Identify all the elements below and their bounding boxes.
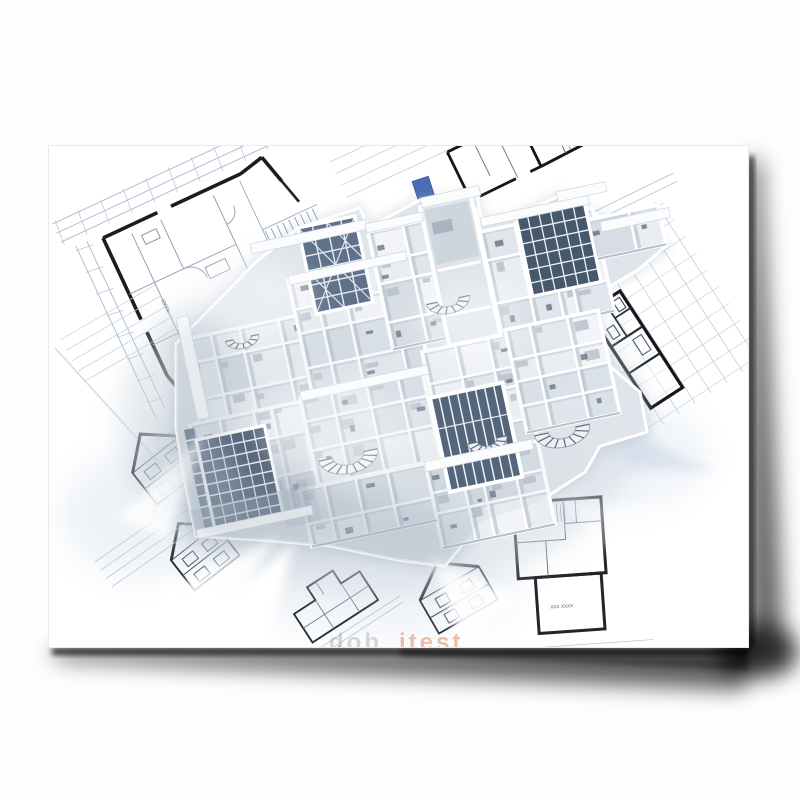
svg-text:dob: dob (329, 629, 382, 647)
svg-text:itest: itest (399, 629, 463, 647)
svg-text:xxx xxxx: xxx xxxx (550, 603, 573, 611)
svg-text:xxxx: xxxx (160, 297, 172, 313)
